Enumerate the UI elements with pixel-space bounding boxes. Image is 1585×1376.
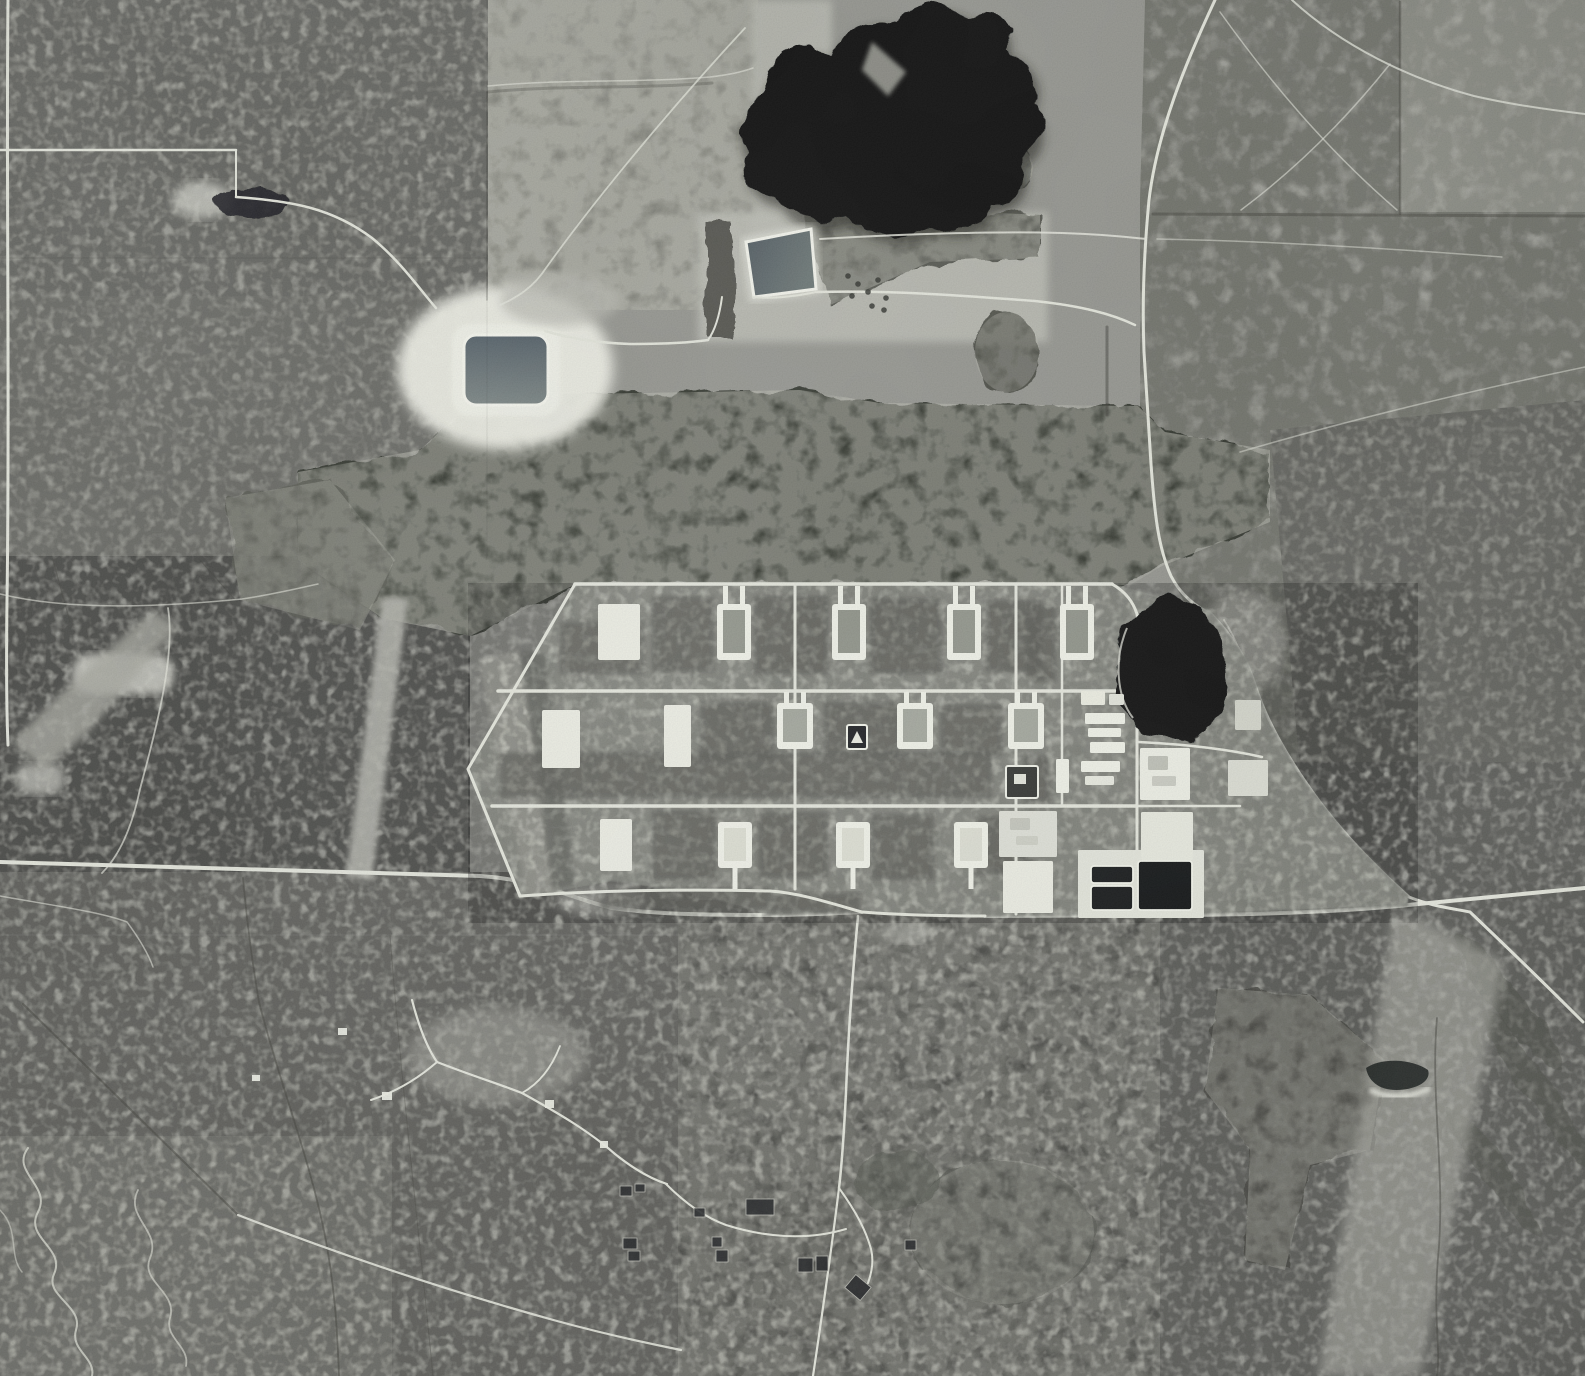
vignette <box>0 0 1585 1376</box>
photo-grain-artifacts <box>0 0 1585 1376</box>
aerial-photograph <box>0 0 1585 1376</box>
aerial-photo-viewport <box>0 0 1585 1376</box>
